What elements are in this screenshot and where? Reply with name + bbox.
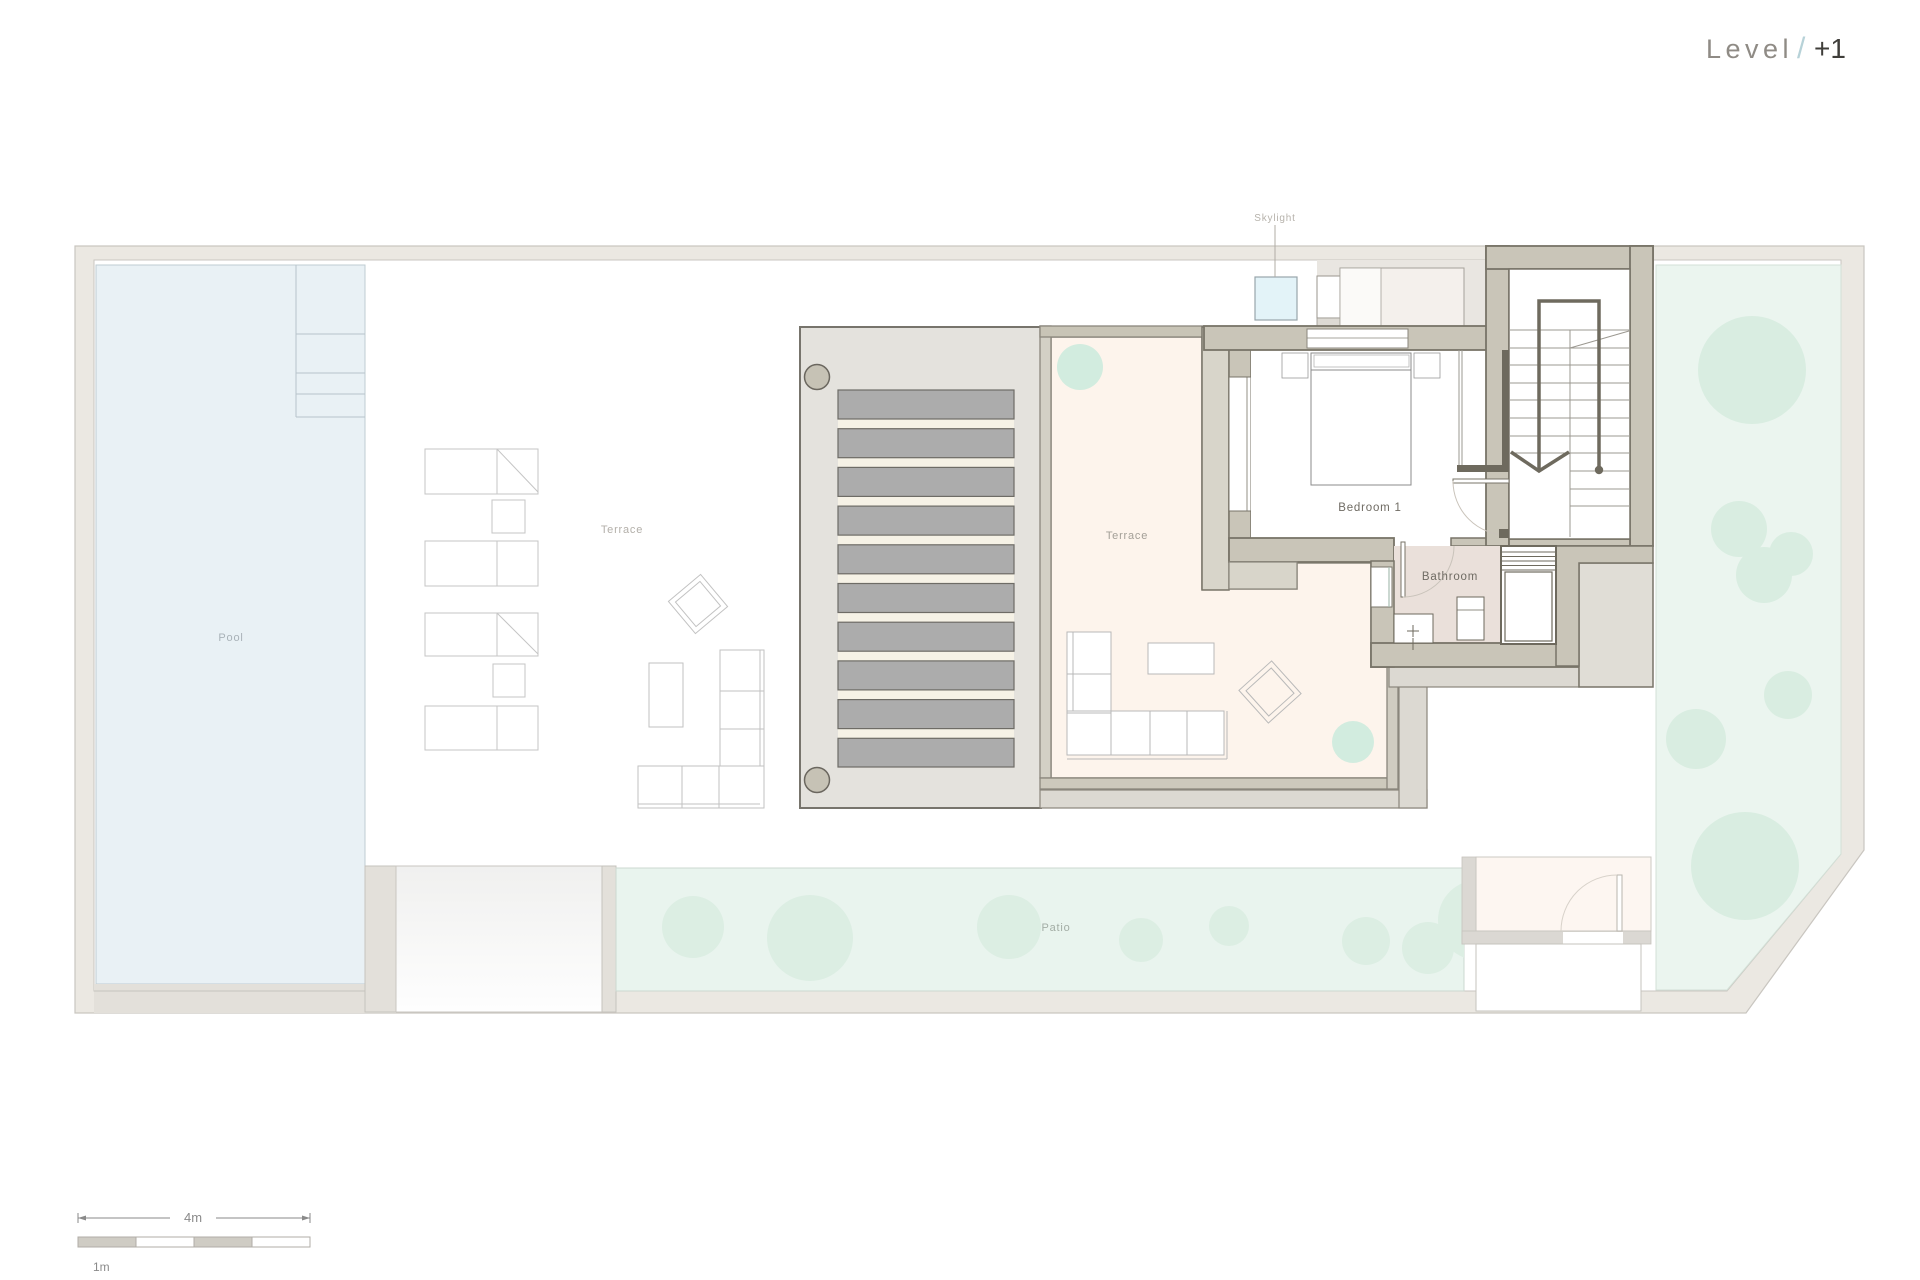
svg-text:Patio: Patio [1041,922,1070,934]
svg-text:+1: +1 [1814,33,1846,64]
svg-text:Pool: Pool [218,632,243,644]
svg-text:1m: 1m [93,1260,110,1274]
svg-text:Terrace: Terrace [1106,530,1148,542]
svg-text:Skylight: Skylight [1254,213,1295,224]
svg-text:/: / [1797,32,1806,65]
svg-text:Bedroom 1: Bedroom 1 [1338,502,1401,514]
svg-text:Level: Level [1706,34,1793,64]
svg-text:4m: 4m [184,1210,202,1225]
svg-text:Terrace: Terrace [601,524,643,536]
svg-text:Bathroom: Bathroom [1422,571,1478,583]
